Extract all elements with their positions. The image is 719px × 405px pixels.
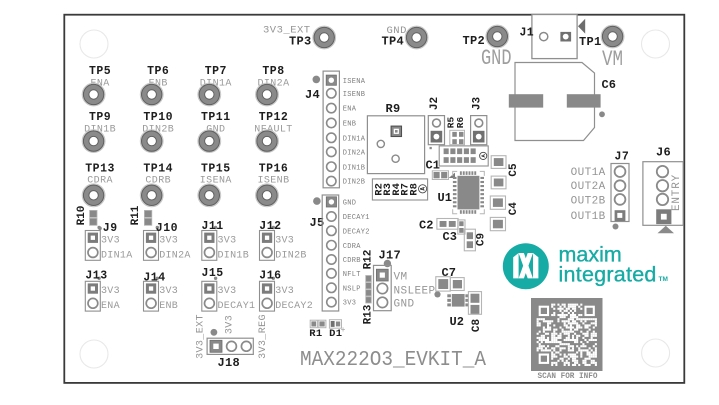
svg-text:TP6: TP6 bbox=[147, 65, 169, 78]
svg-text:OUT2B: OUT2B bbox=[571, 195, 606, 207]
svg-text:NSLEEP: NSLEEP bbox=[394, 285, 436, 297]
svg-text:TP10: TP10 bbox=[143, 111, 173, 124]
svg-text:R1 D1: R1 D1 bbox=[309, 328, 342, 340]
svg-text:VM: VM bbox=[394, 272, 408, 284]
svg-text:J15: J15 bbox=[202, 267, 224, 280]
svg-text:ENB: ENB bbox=[159, 301, 178, 312]
svg-text:R10: R10 bbox=[76, 206, 88, 226]
svg-text:R6: R6 bbox=[455, 117, 466, 129]
svg-text:DECAY1: DECAY1 bbox=[218, 301, 256, 312]
svg-text:J16: J16 bbox=[259, 269, 281, 282]
svg-text:3V3: 3V3 bbox=[159, 235, 178, 246]
svg-text:CDRB: CDRB bbox=[343, 257, 361, 265]
svg-text:NFLT: NFLT bbox=[343, 271, 361, 279]
svg-text:CDRA: CDRA bbox=[343, 243, 362, 251]
svg-text:TP15: TP15 bbox=[201, 163, 231, 176]
svg-text:TP14: TP14 bbox=[143, 163, 173, 176]
svg-text:DECAY2: DECAY2 bbox=[343, 228, 370, 236]
svg-text:ENTRY: ENTRY bbox=[671, 174, 683, 211]
svg-text:OUT1B: OUT1B bbox=[571, 211, 606, 223]
svg-text:ENA: ENA bbox=[343, 106, 357, 114]
svg-text:TP7: TP7 bbox=[205, 65, 227, 78]
svg-text:A: A bbox=[420, 187, 427, 191]
svg-text:C6: C6 bbox=[602, 78, 616, 92]
svg-text:J11: J11 bbox=[202, 220, 224, 233]
svg-text:U1: U1 bbox=[438, 191, 452, 205]
svg-text:J6: J6 bbox=[656, 146, 671, 160]
svg-text:J4: J4 bbox=[305, 88, 320, 102]
svg-text:J17: J17 bbox=[379, 249, 402, 263]
svg-text:3V3_EXT: 3V3_EXT bbox=[195, 314, 206, 359]
svg-text:GND: GND bbox=[343, 200, 357, 208]
svg-text:3V3: 3V3 bbox=[159, 286, 178, 297]
svg-text:R12: R12 bbox=[363, 250, 375, 270]
svg-text:3V3: 3V3 bbox=[218, 235, 237, 246]
svg-text:integrated: integrated bbox=[559, 263, 657, 287]
svg-text:DIN2A: DIN2A bbox=[343, 150, 366, 158]
svg-text:J10: J10 bbox=[156, 222, 178, 235]
svg-text:J2: J2 bbox=[429, 97, 441, 110]
svg-text:+: + bbox=[341, 326, 346, 335]
svg-text:J9: J9 bbox=[103, 222, 118, 235]
svg-text:MAX222O3_EVKIT_A: MAX222O3_EVKIT_A bbox=[300, 348, 486, 372]
svg-text:3V3: 3V3 bbox=[275, 235, 294, 246]
svg-text:3V3_REG: 3V3_REG bbox=[258, 314, 269, 359]
svg-text:3V3: 3V3 bbox=[275, 286, 294, 297]
svg-text:J12: J12 bbox=[259, 220, 281, 233]
svg-text:TP5: TP5 bbox=[89, 65, 111, 78]
svg-text:3V3: 3V3 bbox=[101, 286, 120, 297]
svg-text:TM: TM bbox=[659, 276, 668, 283]
svg-text:C8: C8 bbox=[471, 319, 483, 333]
svg-text:C2: C2 bbox=[419, 219, 433, 233]
svg-text:DECAY1: DECAY1 bbox=[343, 214, 370, 222]
svg-text:3V3: 3V3 bbox=[224, 315, 235, 334]
svg-text:ISENA: ISENA bbox=[343, 78, 366, 86]
svg-text:ISENB: ISENB bbox=[343, 91, 366, 99]
svg-text:DIN2A: DIN2A bbox=[159, 250, 191, 261]
svg-text:VM: VM bbox=[602, 47, 623, 72]
svg-text:C4: C4 bbox=[508, 202, 520, 216]
svg-text:U2: U2 bbox=[450, 315, 464, 329]
svg-text:TP3: TP3 bbox=[289, 35, 312, 49]
svg-text:ENB: ENB bbox=[343, 121, 357, 129]
svg-text:TP12: TP12 bbox=[259, 111, 289, 124]
svg-text:TP16: TP16 bbox=[259, 163, 289, 176]
svg-text:J3: J3 bbox=[471, 97, 483, 111]
svg-text:R11: R11 bbox=[130, 205, 142, 225]
svg-text:J13: J13 bbox=[85, 269, 107, 282]
svg-text:TP8: TP8 bbox=[262, 65, 284, 78]
svg-text:GND: GND bbox=[481, 46, 512, 71]
svg-text:3V3: 3V3 bbox=[343, 300, 357, 308]
svg-text:SCAN FOR INFO: SCAN FOR INFO bbox=[538, 371, 598, 381]
svg-text:3V3: 3V3 bbox=[101, 235, 120, 246]
svg-text:NSLP: NSLP bbox=[343, 285, 361, 293]
svg-text:OUT1A: OUT1A bbox=[571, 167, 606, 179]
svg-text:TP13: TP13 bbox=[85, 163, 115, 176]
svg-text:J18: J18 bbox=[218, 356, 241, 370]
svg-text:C5: C5 bbox=[508, 163, 520, 177]
svg-text:TP4: TP4 bbox=[382, 35, 405, 49]
svg-text:DIN1B: DIN1B bbox=[343, 164, 366, 172]
svg-text:DECAY2: DECAY2 bbox=[275, 301, 313, 312]
svg-text:DIN1A: DIN1A bbox=[101, 250, 133, 261]
svg-text:J14: J14 bbox=[143, 272, 165, 285]
svg-text:DIN1A: DIN1A bbox=[343, 135, 366, 143]
svg-text:J7: J7 bbox=[615, 151, 630, 164]
svg-text:DIN1B: DIN1B bbox=[218, 250, 250, 261]
svg-text:C3: C3 bbox=[443, 230, 457, 244]
svg-text:C9: C9 bbox=[476, 233, 488, 246]
svg-text:DIN2B: DIN2B bbox=[275, 250, 307, 261]
svg-text:TP1: TP1 bbox=[579, 35, 602, 49]
svg-text:OUT2A: OUT2A bbox=[571, 181, 606, 193]
svg-text:TP9: TP9 bbox=[89, 111, 111, 124]
svg-text:J1: J1 bbox=[520, 27, 534, 40]
svg-text:3V3: 3V3 bbox=[218, 286, 237, 297]
svg-text:R13: R13 bbox=[363, 304, 375, 324]
svg-text:ENA: ENA bbox=[101, 301, 120, 312]
svg-text:R9: R9 bbox=[386, 102, 401, 116]
svg-text:GND: GND bbox=[394, 299, 415, 311]
svg-text:TP11: TP11 bbox=[201, 111, 231, 124]
svg-text:DIN2B: DIN2B bbox=[343, 179, 366, 187]
